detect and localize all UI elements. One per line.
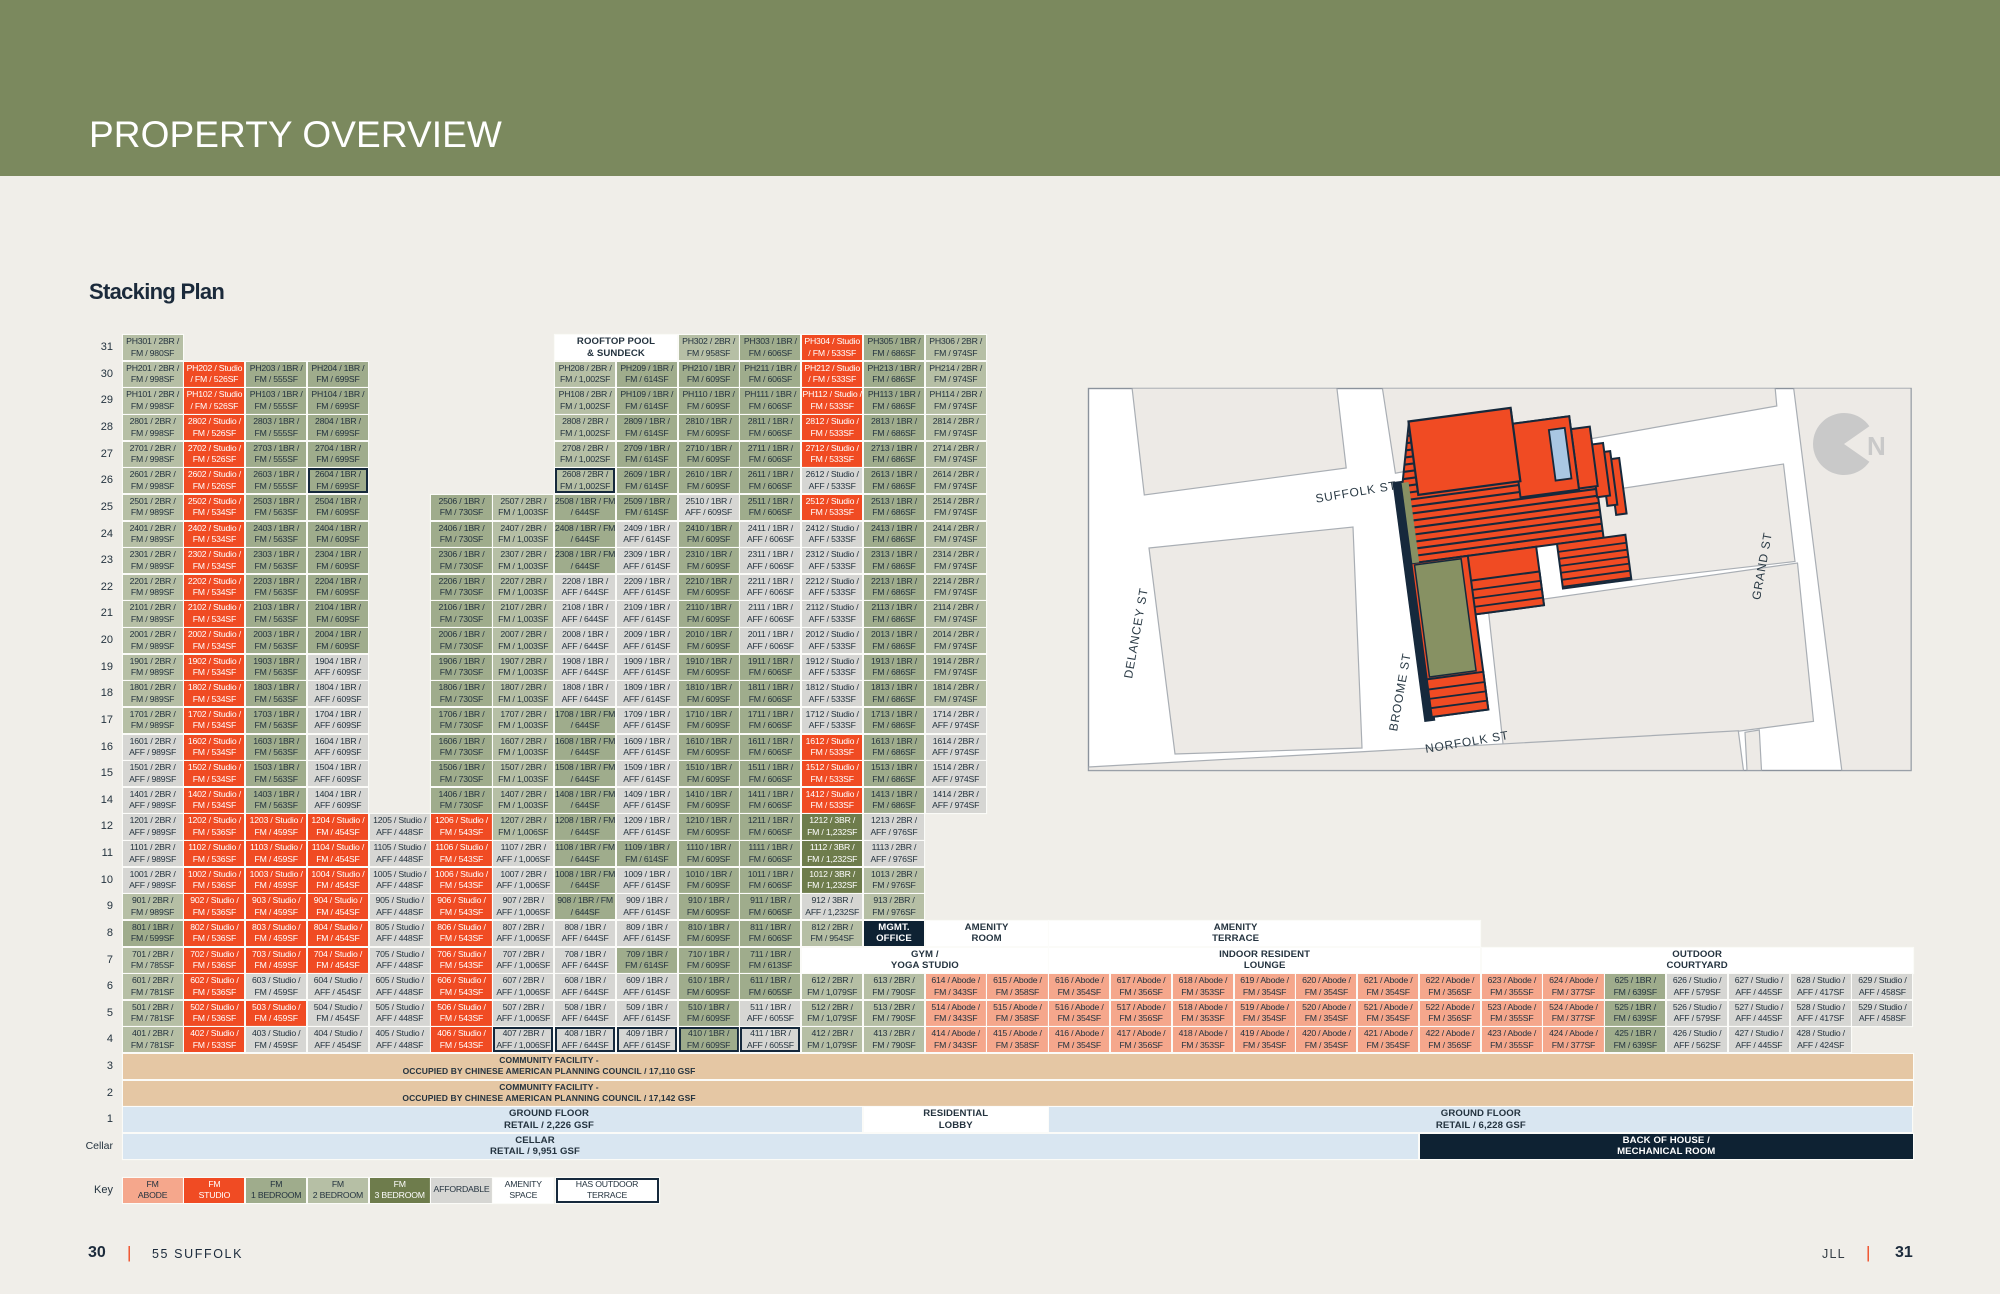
svg-text:N: N	[1867, 431, 1886, 461]
